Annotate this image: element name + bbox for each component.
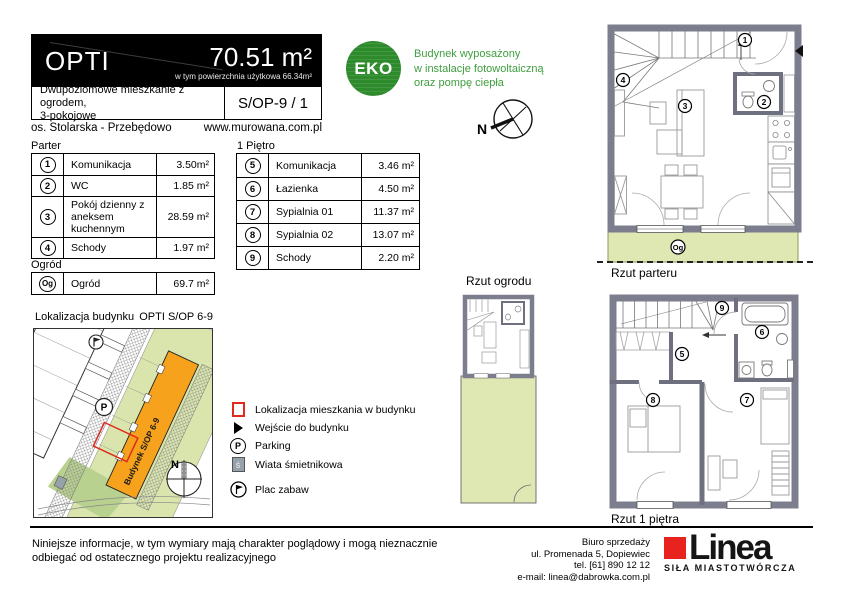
header-banner: OPTI 70.51 m² w tym powierzchnia użytkow… [32,35,321,86]
room-area: 1.97 m² [156,238,214,258]
room-name: Pokój dzienny z aneksem kuchennym [64,197,156,237]
eco-features-text: Budynek wyposażony w instalacje fotowolt… [414,47,544,91]
office-address: ul. Promenada 5, Dopiewiec [440,549,650,561]
garden-area [461,376,536,503]
washbasin [764,81,775,92]
building-code: OPTI S/OP 6-9 [139,311,213,323]
svg-text:6: 6 [760,327,765,337]
table-row: 2 WC 1.85 m² [32,175,214,196]
svg-text:7: 7 [745,395,750,405]
garden-strip [608,232,798,262]
playground-icon [89,335,103,349]
office-title: Biuro sprzedaży [440,537,650,549]
parking-icon: P [96,399,113,416]
room-number-badge: 1 [40,157,56,173]
room-area: 11.37 m² [361,201,419,223]
unit-code: S/OP-9 / 1 [225,87,321,120]
table-row: 6 Łazienka 4.50 m² [237,177,419,200]
entrance-triangle-icon [234,422,243,434]
room-number-badge: 9 [245,250,261,266]
apartment-name: OPTI [45,46,110,77]
red-outline-square-icon [232,402,245,417]
apartment-total-area: 70.51 m² [209,42,312,73]
shaft [784,75,795,112]
ground-plan-label: Rzut parteru [611,266,677,280]
table-row: 4 Schody 1.97 m² [32,237,214,258]
office-email[interactable]: e-mail: linea@dabrowka.com.pl [440,572,650,584]
room-area: 3.50m² [156,154,214,175]
first-floor-table-title: 1 Piętro [237,140,275,152]
room-name: Schody [64,240,156,256]
svg-text:Og: Og [673,243,684,252]
legend-item: ś Wiata śmietnikowa [229,457,343,472]
parking-circle-icon: P [230,438,246,454]
room-area: 4.50 m² [361,178,419,200]
trash-shelter-icon: ś [232,457,245,472]
usable-area-note: w tym powierzchnia użytkowa 66.34m² [175,72,312,81]
estate-location: os. Stolarska - Przebędowo [31,122,172,134]
legend-item: P Parking [229,438,291,454]
garden-plan [456,290,540,505]
legend-item: Lokalizacja mieszkania w budynku [229,402,416,417]
map-legend: Lokalizacja mieszkania w budynku Wejście… [229,400,429,500]
room-area: 28.59 m² [156,197,214,237]
garden-plan-label: Rzut ogrodu [466,274,531,288]
room-number-badge: 3 [40,209,56,225]
svg-text:5: 5 [680,349,685,359]
offer-sheet: OPTI 70.51 m² w tym powierzchnia użytkow… [0,0,842,595]
room-number-badge: 7 [245,204,261,220]
svg-text:9: 9 [720,303,725,313]
table-row: 8 Sypialnia 02 13.07 m² [237,223,419,246]
room-name: WC [64,178,156,194]
room-name: Sypialnia 01 [269,204,361,220]
room-name: Schody [269,250,361,266]
wc-room [735,74,781,113]
playground-circle-icon [230,481,247,498]
svg-text:4: 4 [621,75,626,85]
room-area: 1.85 m² [156,176,214,196]
washbasin [777,334,788,345]
toilet [762,364,772,376]
table-row: 5 Komunikacja 3.46 m² [237,154,419,177]
room-name: Sypialnia 02 [269,227,361,243]
disclaimer: Niniejsze informacje, w tym wymiary mają… [32,537,437,565]
legend-item: Plac zabaw [229,481,309,498]
first-floor-table: 5 Komunikacja 3.46 m² 6 Łazienka 4.50 m²… [236,153,420,270]
svg-text:8: 8 [651,395,656,405]
logo-red-square [664,537,686,559]
svg-text:3: 3 [683,101,688,111]
svg-text:1: 1 [743,35,748,45]
website-link[interactable]: www.murowana.com.pl [204,122,322,134]
site-map: Budynek S/OP 6-9 P N [33,328,213,518]
apartment-description: Dwupoziomowe mieszkanie z ogrodem, 3-pok… [32,87,225,120]
room-name: Ogród [64,276,156,292]
compass-rose: N [476,90,542,150]
table-row: 3 Pokój dzienny z aneksem kuchennym 28.5… [32,196,214,237]
garden-table: Og Ogród 69.7 m² [31,272,215,295]
company-logo: Linea SIŁA MIASTOTWÓRCZA [664,534,824,573]
room-number-badge: 4 [40,240,56,256]
first-plan-label: Rzut 1 piętra [611,512,679,526]
sales-office-info: Biuro sprzedaży ul. Promenada 5, Dopiewi… [440,537,650,583]
header-subline: os. Stolarska - Przebędowo www.murowana.… [31,122,322,134]
plot-boundary-dashed-line [597,261,813,263]
table-row: 7 Sypialnia 01 11.37 m² [237,200,419,223]
table-row: 9 Schody 2.20 m² [237,246,419,269]
room-number-badge: 6 [245,181,261,197]
room-name: Komunikacja [269,158,361,174]
washing-machine [739,362,754,378]
ground-floor-table: 1 Komunikacja 3.50m² 2 WC 1.85 m² 3 Pokó… [31,153,215,259]
mini-wc [502,302,524,324]
room-area: 13.07 m² [361,224,419,246]
room-area: 3.46 m² [361,154,419,177]
room-area: 69.7 m² [156,273,214,294]
first-floor-plan: 9 5 6 8 7 [601,288,806,516]
toilet [743,96,753,108]
svg-text:2: 2 [762,97,767,107]
radiator [788,360,794,378]
room-name: Łazienka [269,181,361,197]
room-number-badge: 2 [40,178,56,194]
office-phone: tel. [61] 890 12 12 [440,560,650,572]
north-label: N [477,121,487,137]
svg-text:P: P [101,403,108,414]
table-row: 1 Komunikacja 3.50m² [32,154,214,175]
ground-floor-table-title: Parter [31,140,61,152]
kitchen-counter [768,116,795,224]
header-box: OPTI 70.51 m² w tym powierzchnia użytkow… [31,34,322,120]
logo-name: Linea [689,534,770,562]
site-plan-title: Lokalizacja budynku OPTI S/OP 6-9 [35,311,213,323]
room-name: Komunikacja [64,157,156,173]
room-number-badge: 5 [245,158,261,174]
ground-floor-plan: 1 2 3 4 Og [601,18,806,266]
north-label: N [171,459,179,471]
eco-badge: EKO [346,41,401,96]
legend-item: Wejście do budynku [229,422,349,434]
garden-table-title: Ogród [31,259,62,271]
room-number-badge: 8 [245,227,261,243]
logo-tagline: SIŁA MIASTOTWÓRCZA [664,563,824,573]
table-row: Og Ogród 69.7 m² [32,273,214,294]
room-area: 2.20 m² [361,247,419,269]
header-subrow: Dwupoziomowe mieszkanie z ogrodem, 3-pok… [32,86,321,120]
room-number-badge: Og [39,276,56,292]
